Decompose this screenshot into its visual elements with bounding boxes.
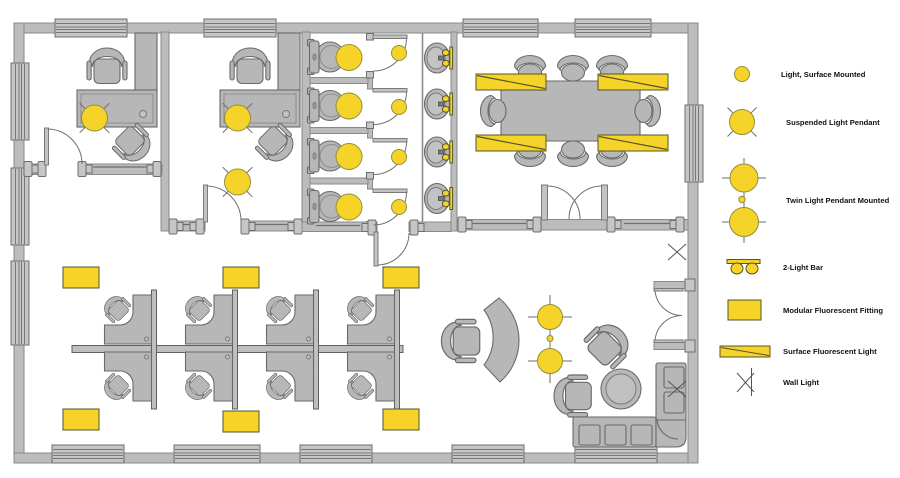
svg-text:Twin Light Pendant Mounted: Twin Light Pendant Mounted <box>786 196 890 205</box>
svg-text:Light, Surface Mounted: Light, Surface Mounted <box>781 70 866 79</box>
svg-text:Wall Light: Wall Light <box>783 378 819 387</box>
svg-text:Surface Fluorescent Light: Surface Fluorescent Light <box>783 347 877 356</box>
svg-text:2-Light Bar: 2-Light Bar <box>783 263 823 272</box>
svg-text:Suspended Light Pendant: Suspended Light Pendant <box>786 118 880 127</box>
svg-text:Modular Fluorescent Fitting: Modular Fluorescent Fitting <box>783 306 883 315</box>
